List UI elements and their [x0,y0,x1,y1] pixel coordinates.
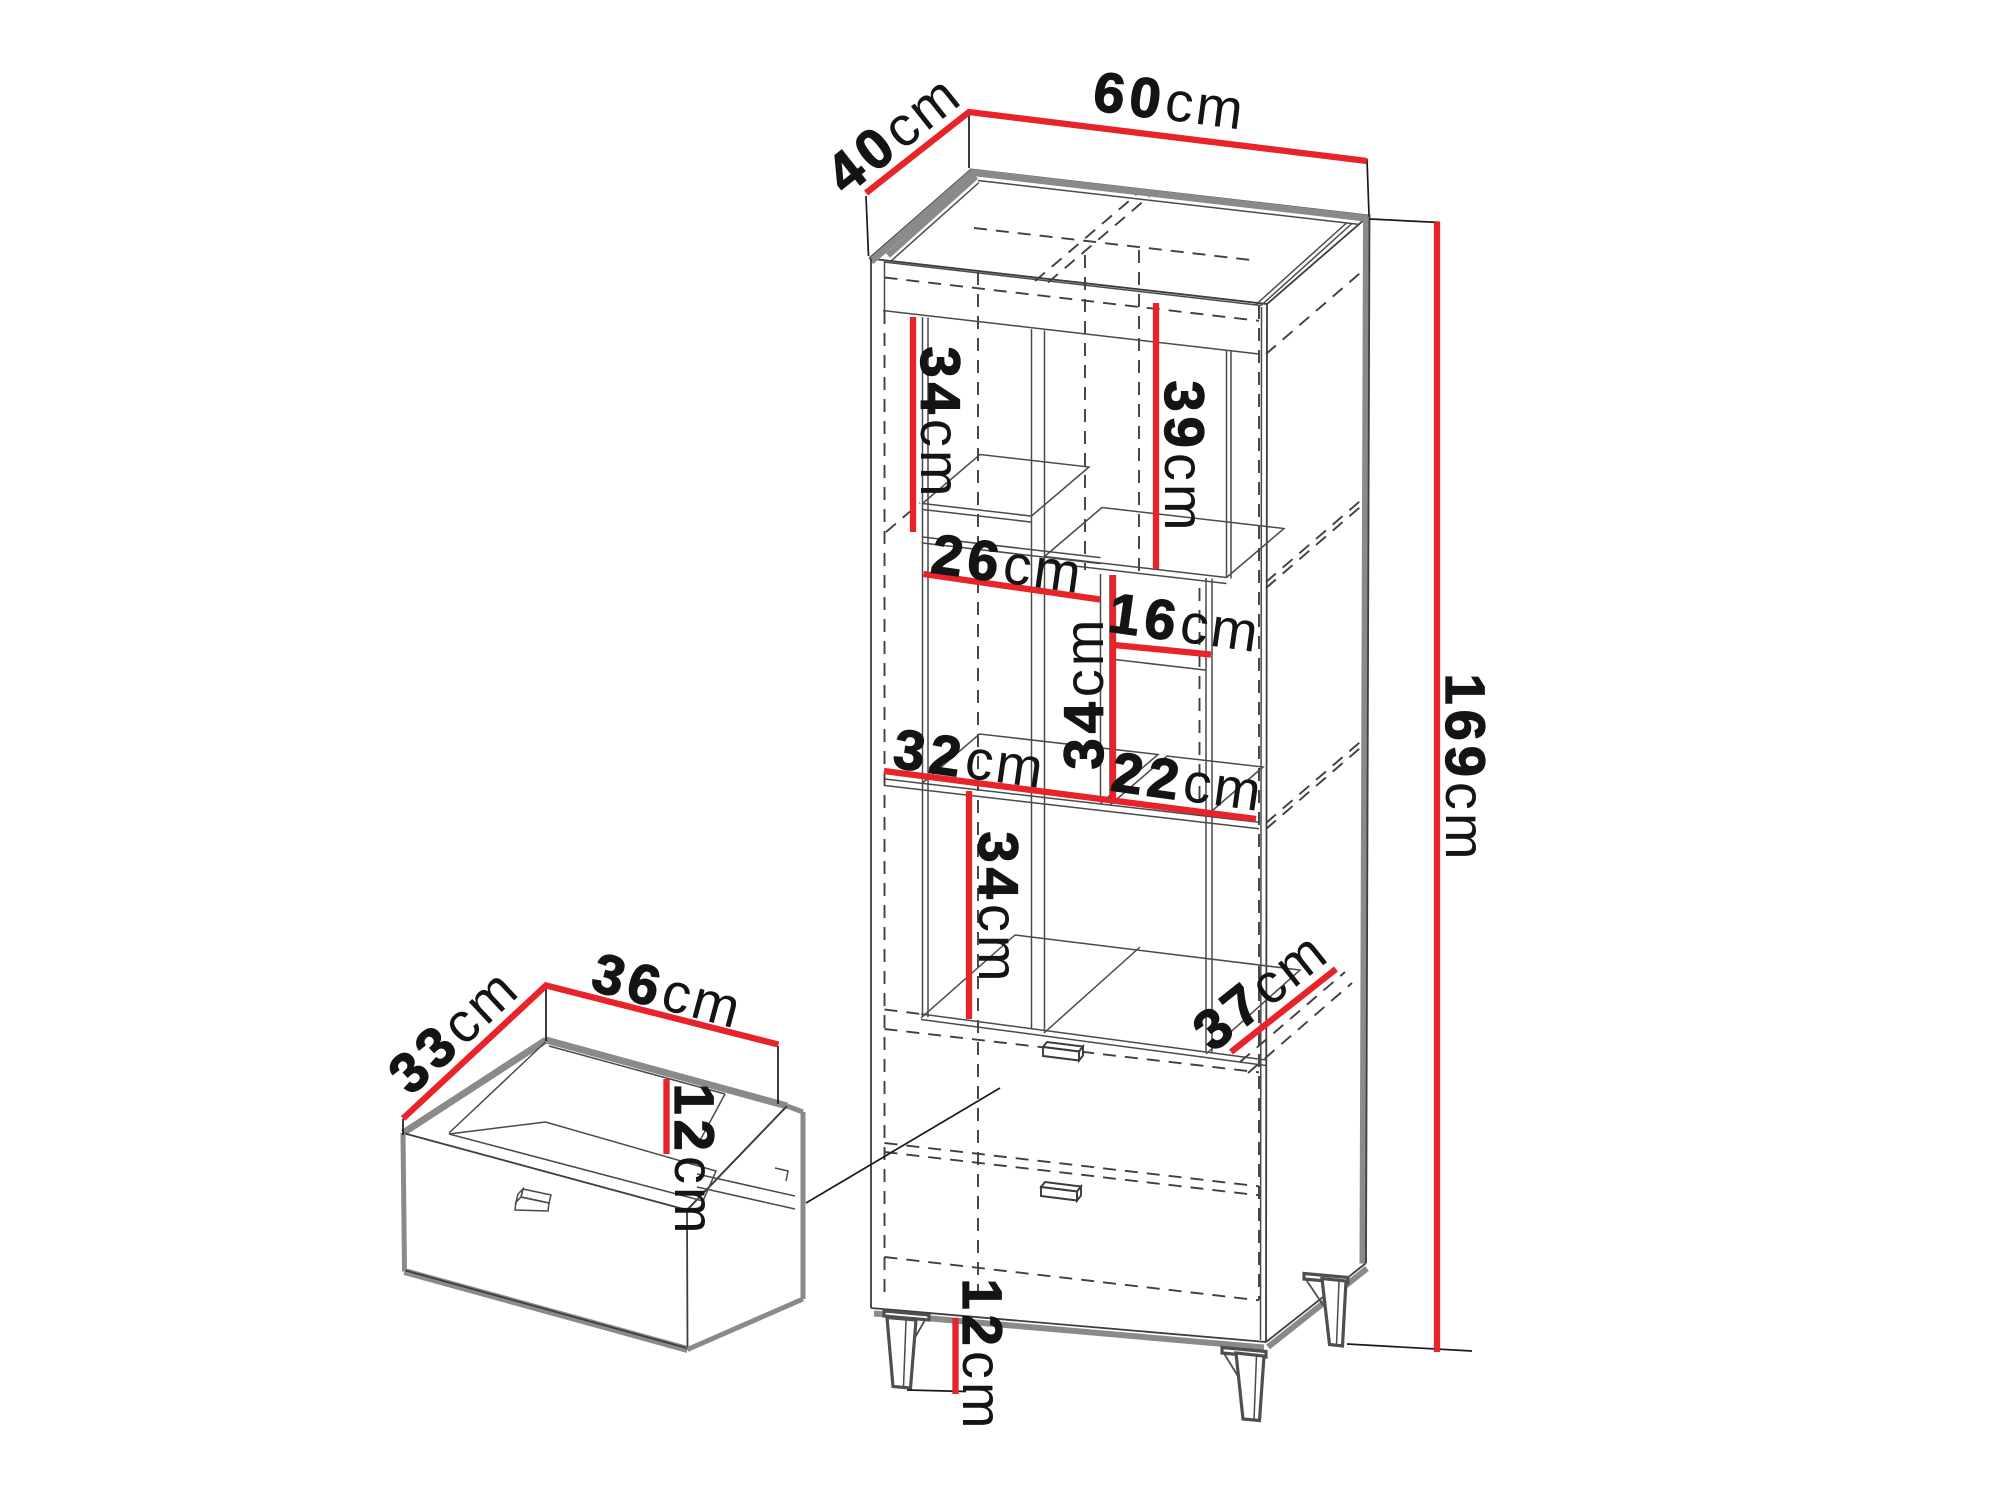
svg-text:169cm: 169cm [1434,673,1497,862]
svg-text:34cm: 34cm [1052,617,1115,770]
svg-text:34cm: 34cm [909,347,972,500]
svg-text:39cm: 39cm [1153,381,1216,534]
svg-text:12cm: 12cm [951,1279,1014,1432]
svg-text:34cm: 34cm [967,832,1030,985]
svg-text:12cm: 12cm [663,1084,726,1237]
